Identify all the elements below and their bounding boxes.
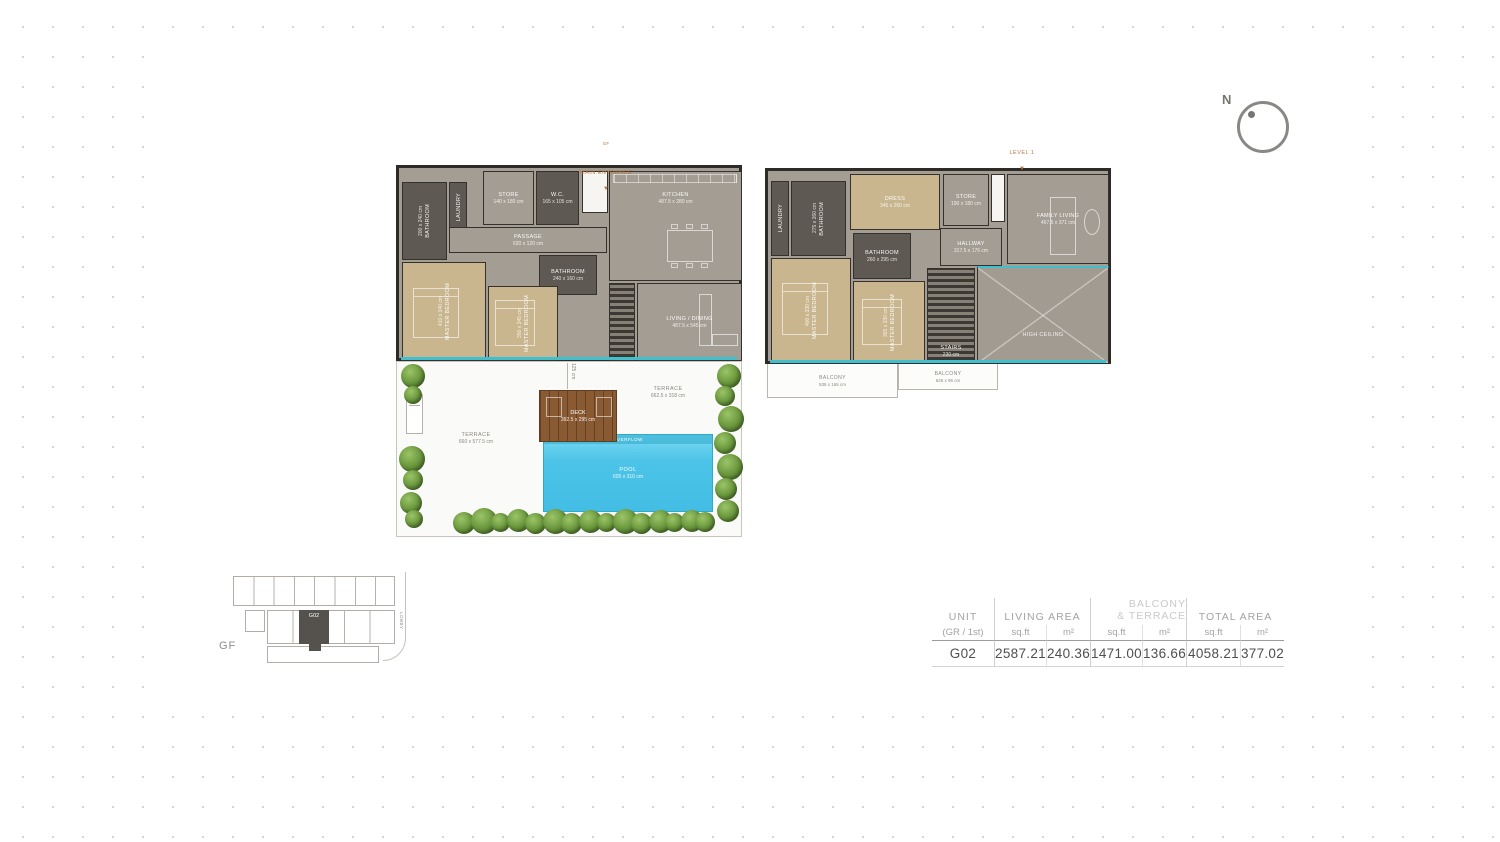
- room-bathroom1: BATHROOM275 x 260 cm: [791, 181, 846, 256]
- total-sqm-value: 377.02: [1240, 640, 1284, 667]
- wooden-deck: DECK 392.5 x 295 cm: [539, 390, 617, 442]
- balcony: BALCONY 625 x 95 cm: [898, 364, 998, 390]
- level-tag-text: LEVEL 1: [1009, 150, 1034, 165]
- tree-icon: [717, 500, 739, 522]
- room-gfstairs: [609, 283, 635, 361]
- key-plan: G02 GF LOBBY: [215, 570, 407, 666]
- tree-icon: [695, 512, 715, 532]
- room-family: FAMILY LIVING467.5 x 371 cm: [1007, 174, 1109, 264]
- key-plan-highlight: G02: [299, 610, 329, 644]
- living-sqft-header: sq.ft: [994, 625, 1046, 640]
- l1-building: LAUNDRYBATHROOM275 x 260 cmDRESS345 x 26…: [765, 168, 1111, 364]
- tree-icon: [405, 510, 423, 528]
- key-plan-driveway: [267, 646, 379, 663]
- living-sqm-value: 240.36: [1046, 640, 1090, 667]
- key-plan-road: [383, 572, 406, 661]
- main-entrance-label: GF MAIN ENTRANCE ▼: [546, 141, 666, 192]
- room-store: STORE190 x 180 cm: [943, 174, 989, 226]
- room-passage: PASSAGE620 x 120 cm: [449, 227, 607, 253]
- tree-icon: [715, 386, 735, 406]
- col-living-title: LIVING AREA: [994, 598, 1090, 625]
- compass-circle-icon: [1237, 101, 1289, 153]
- dimension-label: 125 cm: [567, 363, 576, 389]
- entrance-label-text: MAIN ENTRANCE: [580, 170, 632, 185]
- tree-icon: [715, 478, 737, 500]
- total-sqft-value: 4058.21: [1186, 640, 1240, 667]
- balcony-sqft-header: sq.ft: [1090, 625, 1142, 640]
- gf-building: BATHROOM200 x 240 cmLAUNDRYSTORE140 x 18…: [396, 165, 742, 361]
- tree-icon: [404, 386, 422, 404]
- room-laundry: LAUNDRY: [771, 181, 789, 256]
- ground-floor-plan: GF MAIN ENTRANCE ▼ BATHROOM200 x 240 cmL…: [396, 165, 742, 537]
- key-plan-units-row2: [267, 610, 395, 644]
- room-bed2: MASTER BEDROOM365 x 330 cm: [853, 281, 925, 364]
- balcony-sqm-header: m²: [1142, 625, 1186, 640]
- gf-rooms-layer: BATHROOM200 x 240 cmLAUNDRYSTORE140 x 18…: [399, 168, 739, 358]
- l1-rooms-layer: LAUNDRYBATHROOM275 x 260 cmDRESS345 x 26…: [768, 171, 1108, 361]
- col-balcony-title: BALCONY & TERRACE: [1090, 598, 1186, 625]
- room-bed2: MASTER BEDROOM350 x 345 cm: [488, 286, 558, 361]
- north-compass: N: [1237, 101, 1289, 153]
- room-stairs: STAIRS230 cm: [927, 268, 975, 364]
- tree-icon: [403, 470, 423, 490]
- room-living: LIVING / DINING487.5 x 545 cm: [637, 283, 742, 361]
- key-plan-units-row1: [233, 576, 395, 606]
- balcony-sqft-value: 1471.00: [1090, 640, 1142, 667]
- glass-balustrade: [401, 357, 737, 360]
- area-table: UNIT LIVING AREA BALCONY & TERRACE TOTAL…: [932, 598, 1284, 667]
- compass-dot-icon: [1248, 111, 1255, 118]
- balcony-sqm-value: 136.66: [1142, 640, 1186, 667]
- unit-value: G02: [932, 640, 994, 667]
- living-sqm-header: m²: [1046, 625, 1090, 640]
- room-hallway: HALLWAY317.5 x 176 cm: [940, 228, 1002, 266]
- living-sqft-value: 2587.21: [994, 640, 1046, 667]
- tree-icon: [717, 454, 743, 480]
- col-total-title: TOTAL AREA: [1186, 598, 1284, 625]
- col-unit-title: UNIT: [932, 598, 994, 625]
- room-bathroom1: BATHROOM200 x 240 cm: [402, 182, 447, 260]
- room-bed1: MASTER BEDROOM400 x 330 cm: [771, 258, 851, 364]
- balcony: BALCONY 535 x 165 cm: [767, 364, 898, 398]
- room-laundry: LAUNDRY: [449, 182, 467, 232]
- key-plan-small-unit: [245, 610, 265, 632]
- entrance-floor-tag: GF: [603, 141, 610, 170]
- glass-balustrade: [770, 360, 1106, 363]
- key-plan-floor-label: GF: [219, 640, 236, 652]
- tree-icon: [714, 432, 736, 454]
- total-sqm-header: m²: [1240, 625, 1284, 640]
- tree-icon: [717, 364, 741, 388]
- level-1-plan: LEVEL 1 ▼ LAUNDRYBATHROOM275 x 260 cmDRE…: [765, 168, 1111, 400]
- room-store: STORE140 x 180 cm: [483, 171, 534, 225]
- unit-subtitle: (GR / 1st): [932, 625, 994, 640]
- level-1-label: LEVEL 1 ▼: [962, 150, 1082, 172]
- key-plan-highlight-notch: [309, 644, 321, 651]
- terrace-left-label: TERRACE 660 x 577.5 cm: [445, 432, 507, 445]
- room-bed1: MASTER BEDROOM410 x 340 cm: [402, 262, 486, 361]
- tree-icon: [401, 364, 425, 388]
- room-high_ceiling: HIGH CEILING: [977, 266, 1109, 364]
- page: GF MAIN ENTRANCE ▼ BATHROOM200 x 240 cmL…: [0, 0, 1500, 842]
- level-arrow-icon: ▼: [1019, 166, 1025, 172]
- tree-icon: [718, 406, 744, 432]
- entrance-arrow-icon: ▼: [603, 186, 609, 192]
- room-dress: DRESS345 x 260 cm: [850, 174, 940, 230]
- total-sqft-header: sq.ft: [1186, 625, 1240, 640]
- gf-outdoor-terrace: TERRACE 660 x 577.5 cm TERRACE 662.5 x 3…: [396, 361, 742, 537]
- room-gap: [991, 174, 1005, 222]
- north-label: N: [1222, 92, 1231, 107]
- room-bathroom2: BATHROOM260 x 295 cm: [853, 233, 911, 279]
- tree-icon: [399, 446, 425, 472]
- terrace-right-label: TERRACE 662.5 x 318 cm: [637, 386, 699, 399]
- deck-label: DECK 392.5 x 295 cm: [540, 391, 616, 441]
